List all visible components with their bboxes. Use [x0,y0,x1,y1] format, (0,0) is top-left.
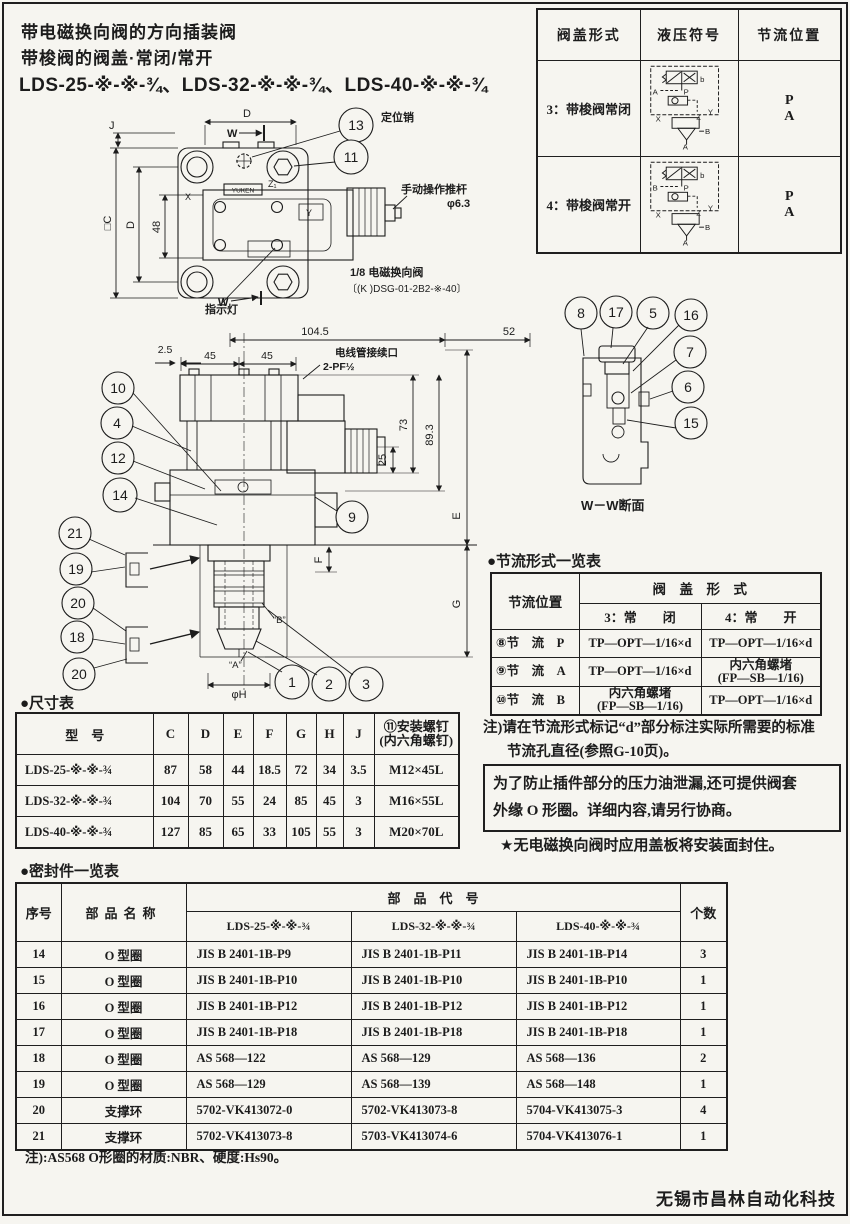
brand-label: YUKEN [232,188,255,195]
symbol-port-x: X [656,210,661,219]
dim-c: □C [102,216,114,231]
cell-f: 24 [253,786,286,817]
manual-rod-label: 手动操作推杆 [401,182,467,196]
cell-d: 58 [188,755,223,786]
cell-code-25: JIS B 2401-1B-P10 [186,967,351,993]
port-a-label: “A” [229,660,242,671]
boxed-note-line2: 外缘 O 形圈。详细内容,请另行协商。 [493,798,831,825]
dim-g: G [451,600,463,609]
cell-j: 3 [343,786,374,817]
symbol-port-a: A [683,239,689,247]
dim-e: E [451,512,463,519]
col-header-model-32: LDS-32-※-※-¾ [351,911,516,941]
cell-code-32: JIS B 2401-1B-P11 [351,941,516,967]
col-header-part-name: 部品名称 [61,883,186,941]
cell-no: 19 [16,1071,61,1097]
cell-g: 105 [286,817,316,849]
dim-73: 73 [398,419,410,431]
cell-qty: 3 [680,941,727,967]
model-codes-title: LDS-25-※-※-¾、LDS-32-※-※-¾、LDS-40-※-※-¾ [19,70,488,97]
model-cell: LDS-25-※-※-¾ [16,755,153,786]
dim-j: J [109,120,115,132]
hydraulic-symbol-drawing: b B P X Z Y B A [643,157,735,247]
cell-qty: 1 [680,1123,727,1150]
callout-19: 19 [68,561,84,577]
symbol-port-side: A [653,87,659,96]
table-row: 15 O 型圈 JIS B 2401-1B-P10 JIS B 2401-1B-… [16,967,727,993]
hydraulic-symbol-drawing: b A P X Z Y B A [643,61,735,151]
page-title: 带电磁换向阀的方向插装阀 [21,18,237,43]
page-subtitle: 带梭阀的阀盖·常闭/常开 [21,44,213,69]
cell-name: O 型圈 [61,967,186,993]
cell-code-32: JIS B 2401-1B-P10 [351,967,516,993]
cell-code-40: JIS B 2401-1B-P18 [516,1019,680,1045]
symbol-port-y: Y [708,204,713,213]
cell-qty: 1 [680,1071,727,1097]
cell-g: 72 [286,755,316,786]
seal-table-title: ●密封件一览表 [20,860,119,881]
hydraulic-symbol-closed: b A P X Z Y B A [640,61,738,157]
callout-16: 16 [683,307,699,323]
callout-4: 4 [113,415,121,431]
callout-1: 1 [288,674,296,690]
cell-f: 18.5 [253,755,286,786]
cell-h: 34 [316,755,343,786]
cell-code-40: JIS B 2401-1B-P14 [516,941,680,967]
cell-screw: M20×70L [374,817,459,849]
cell-name: O 型圈 [61,1019,186,1045]
dim-104-5: 104.5 [301,326,329,338]
callout-3: 3 [362,676,370,692]
cell-d: 85 [188,817,223,849]
dim-48: 48 [151,221,163,233]
cell-no: 18 [16,1045,61,1071]
seal-material-note: 注):AS568 O形圈的材质:NBR、硬度:Hs90。 [25,1146,287,1166]
dim-phi-h: φH [231,689,246,701]
cell-code-40: 5704-VK413075-3 [516,1097,680,1123]
callout-6: 6 [684,379,692,395]
cell-open: TP—OPT—1/16×d [701,629,821,657]
dim-d-top: D [243,108,251,120]
col-header-model-25: LDS-25-※-※-¾ [186,911,351,941]
callout-17: 17 [608,304,624,320]
screw-header-line2: (内六角螺钉) [378,734,456,748]
symbol-port-z: Z [696,209,701,218]
callout-8: 8 [577,305,585,321]
datasheet-page: 带电磁换向阀的方向插装阀 带梭阀的阀盖·常闭/常开 LDS-25-※-※-¾、L… [0,0,850,1224]
symbol-port-z: Z [696,113,701,122]
col-header-g: G [286,713,316,755]
col-header-hydraulic-symbol: 液压符号 [640,9,738,61]
symbol-port-y: Y [708,108,713,117]
cell-closed: TP—OPT—1/16×d [579,657,701,686]
table-row: 20 支撑环 5702-VK413072-0 5702-VK413073-8 5… [16,1097,727,1123]
dim-45-a: 45 [204,350,216,362]
cell-c: 104 [153,786,188,817]
col-header-part-code: 部 品 代 号 [186,883,680,911]
cell-code-25: 5702-VK413072-0 [186,1097,351,1123]
cell-no: 16 [16,993,61,1019]
cell-code-32: 5703-VK413074-6 [351,1123,516,1150]
cell-closed: TP—OPT—1/16×d [579,629,701,657]
throttle-table-title: ●节流形式一览表 [487,550,601,571]
dim-25: 25 [377,454,389,466]
col-header-throttle-pos: 节流位置 [491,573,579,629]
cell-no: 17 [16,1019,61,1045]
port-b-label: “B” [273,615,286,626]
col-header-h: H [316,713,343,755]
oring-option-note: 为了防止插件部分的压力油泄漏,还可提供阀套 外缘 O 形圈。详细内容,请另行协商… [483,764,841,832]
model-cell: LDS-32-※-※-¾ [16,786,153,817]
callout-5: 5 [649,305,657,321]
ww-section-caption: W－W断面 [581,498,645,513]
cell-name: O 型圈 [61,1071,186,1097]
cell-e: 65 [223,817,253,849]
throttle-note-line1: 注)请在节流形式标记“d”部分标注实际所需要的标准 [483,716,843,737]
company-footer: 无锡市昌林自动化科技 [400,1185,836,1210]
boxed-note-line1: 为了防止插件部分的压力油泄漏,还可提供阀套 [493,771,831,798]
table-row: LDS-40-※-※-¾ 127 85 65 33 105 55 3 M20×7… [16,817,459,849]
table-row: ⑨节 流 A TP—OPT—1/16×d 内六角螺堵 (FP—SB—1/16) [491,657,821,686]
callout-18: 18 [69,629,85,645]
col-header-d: D [188,713,223,755]
cell-code-40: AS 568—136 [516,1045,680,1071]
cell-code-40: JIS B 2401-1B-P12 [516,993,680,1019]
dim-f: F [313,556,325,563]
cell-c: 127 [153,817,188,849]
callout-11: 11 [344,149,359,165]
table-row: 19 O 型圈 AS 568—129 AS 568—139 AS 568—148… [16,1071,727,1097]
cell-closed: 内六角螺堵 (FP—SB—1/16) [579,686,701,715]
callout-12: 12 [110,450,126,466]
ww-section-drawing: 8 17 5 16 7 6 15 W－W断面 [553,272,848,527]
model-cell: LDS-40-※-※-¾ [16,817,153,849]
screw-header-line1: ⑪安装螺钉 [378,720,456,734]
col-header-normally-open: 4：常 开 [701,603,821,629]
dim-45-b: 45 [261,350,273,362]
dimension-table: 型 号 C D E F G H J ⑪安装螺钉 (内六角螺钉) LDS-25-※… [15,712,460,849]
throttle-pos-a: ⑨节 流 A [491,657,579,686]
cell-qty: 2 [680,1045,727,1071]
cell-qty: 4 [680,1097,727,1123]
symbol-port-p: P [684,87,689,96]
cell-qty: 1 [680,1019,727,1045]
cell-code-40: 5704-VK413076-1 [516,1123,680,1150]
col-header-f: F [253,713,286,755]
col-header-cover-form-span: 阀 盖 形 式 [579,573,821,603]
cell-open: 内六角螺堵 (FP—SB—1/16) [701,657,821,686]
symbol-port-bb: B [705,127,710,136]
symbol-port-b-sol: b [700,171,704,180]
callout-21: 21 [67,525,83,541]
col-header-j: J [343,713,374,755]
port-z1-label: Z₁ [268,179,277,189]
col-header-cover-form: 阀盖形式 [537,9,640,61]
cell-code-32: 5702-VK413073-8 [351,1097,516,1123]
conduit-label: 电线管接续口 [335,346,398,359]
table-row: LDS-32-※-※-¾ 104 70 55 24 85 45 3 M16×55… [16,786,459,817]
cell-qty: 1 [680,967,727,993]
dim-w-bottom: W [218,297,229,309]
solenoid-valve-label: 1/8 电磁换向阀 [350,265,423,279]
cell-code-32: JIS B 2401-1B-P12 [351,993,516,1019]
throttle-positions-closed: P A [738,61,841,157]
manual-rod-diameter: φ6.3 [447,198,470,210]
callout-10: 10 [110,380,126,396]
cell-code-25: AS 568—129 [186,1071,351,1097]
dim-52: 52 [503,326,515,338]
table-row: LDS-25-※-※-¾ 87 58 44 18.5 72 34 3.5 M12… [16,755,459,786]
callout-20b: 20 [71,666,87,682]
pos-p: P [739,189,841,205]
throttle-pos-b: ⑩节 流 B [491,686,579,715]
dim-w-top: W [227,128,238,140]
col-header-normally-closed: 3：常 闭 [579,603,701,629]
dim-89-3: 89.3 [424,424,436,445]
table-row: ⑧节 流 P TP—OPT—1/16×d TP—OPT—1/16×d [491,629,821,657]
throttle-pos-p: ⑧节 流 P [491,629,579,657]
cell-h: 45 [316,786,343,817]
dim-table-title: ●尺寸表 [20,692,74,713]
cell-code-32: AS 568—139 [351,1071,516,1097]
cell-screw: M12×45L [374,755,459,786]
cell-h: 55 [316,817,343,849]
cell-e: 55 [223,786,253,817]
cell-code-25: JIS B 2401-1B-P9 [186,941,351,967]
cell-g: 85 [286,786,316,817]
port-y-label: Y [306,208,312,218]
seal-parts-table: 序号 部品名称 部 品 代 号 个数 LDS-25-※-※-¾ LDS-32-※… [15,882,728,1151]
symbol-port-bb: B [705,223,710,232]
symbol-port-a: A [683,143,689,151]
table-row: ⑩节 流 B 内六角螺堵 (FP—SB—1/16) TP—OPT—1/16×d [491,686,821,715]
table-row: 18 O 型圈 AS 568—122 AS 568—129 AS 568—136… [16,1045,727,1071]
col-header-qty: 个数 [680,883,727,941]
cell-d: 70 [188,786,223,817]
cover-plate-note: ★无电磁换向阀时应用盖板将安装面封住。 [500,834,845,855]
cell-code-40: JIS B 2401-1B-P10 [516,967,680,993]
pos-a: A [739,109,841,125]
dim-d-left: D [125,221,137,229]
table-row: 14 O 型圈 JIS B 2401-1B-P9 JIS B 2401-1B-P… [16,941,727,967]
col-header-throttle-position: 节流位置 [738,9,841,61]
callout-9: 9 [348,509,356,525]
callout-2: 2 [325,676,333,692]
valve-cover-form-table: 阀盖形式 液压符号 节流位置 3：带梭阀常闭 [536,8,842,254]
pin-label: 定位销 [381,110,414,124]
throttle-note-line2: 节流孔直径(参照G-10页)。 [507,740,837,761]
cell-j: 3.5 [343,755,374,786]
symbol-port-p: P [684,183,689,192]
table-row: 16 O 型圈 JIS B 2401-1B-P12 JIS B 2401-1B-… [16,993,727,1019]
cell-no: 15 [16,967,61,993]
cell-e: 44 [223,755,253,786]
cell-j: 3 [343,817,374,849]
pos-a: A [739,205,841,221]
cell-no: 20 [16,1097,61,1123]
hydraulic-symbol-open: b B P X Z Y B A [640,157,738,254]
solenoid-valve-model: 〔(K )DSG-01-2B2-※-40〕 [347,283,467,295]
cell-code-32: AS 568—129 [351,1045,516,1071]
port-x-label: X [185,192,191,202]
cell-code-32: JIS B 2401-1B-P18 [351,1019,516,1045]
cell-qty: 1 [680,993,727,1019]
symbol-port-x: X [656,114,661,123]
cell-name: O 型圈 [61,1045,186,1071]
conduit-size: 2-PF½ [323,361,355,373]
throttle-positions-open: P A [738,157,841,254]
cell-code-25: AS 568—122 [186,1045,351,1071]
callout-14: 14 [112,487,128,503]
cover-form-3-label: 3：带梭阀常闭 [537,61,640,157]
callout-7: 7 [686,344,694,360]
cell-code-25: JIS B 2401-1B-P18 [186,1019,351,1045]
cell-c: 87 [153,755,188,786]
col-header-model: 型 号 [16,713,153,755]
col-header-model-40: LDS-40-※-※-¾ [516,911,680,941]
cell-name: O 型圈 [61,941,186,967]
callout-20a: 20 [70,595,86,611]
symbol-port-b-sol: b [700,75,704,84]
dim-2-5: 2.5 [158,344,173,356]
col-header-screw: ⑪安装螺钉 (内六角螺钉) [374,713,459,755]
cell-f: 33 [253,817,286,849]
symbol-port-side: B [653,183,658,192]
callout-15: 15 [683,415,699,431]
cell-code-25: JIS B 2401-1B-P12 [186,993,351,1019]
pos-p: P [739,93,841,109]
main-technical-drawing: 13 11 定位销 手动操作推杆 φ6.3 指示灯 1/8 电磁换向阀 〔(K … [15,95,535,705]
cell-screw: M16×55L [374,786,459,817]
throttle-form-table: 节流位置 阀 盖 形 式 3：常 闭 4：常 开 ⑧节 流 P TP—OPT—1… [490,572,822,716]
cell-code-40: AS 568—148 [516,1071,680,1097]
cell-no: 14 [16,941,61,967]
cell-name: 支撑环 [61,1097,186,1123]
cell-open: TP—OPT—1/16×d [701,686,821,715]
callout-13: 13 [348,117,364,133]
col-header-no: 序号 [16,883,61,941]
table-row: 17 O 型圈 JIS B 2401-1B-P18 JIS B 2401-1B-… [16,1019,727,1045]
cell-name: O 型圈 [61,993,186,1019]
col-header-e: E [223,713,253,755]
cover-form-4-label: 4：带梭阀常开 [537,157,640,254]
col-header-c: C [153,713,188,755]
